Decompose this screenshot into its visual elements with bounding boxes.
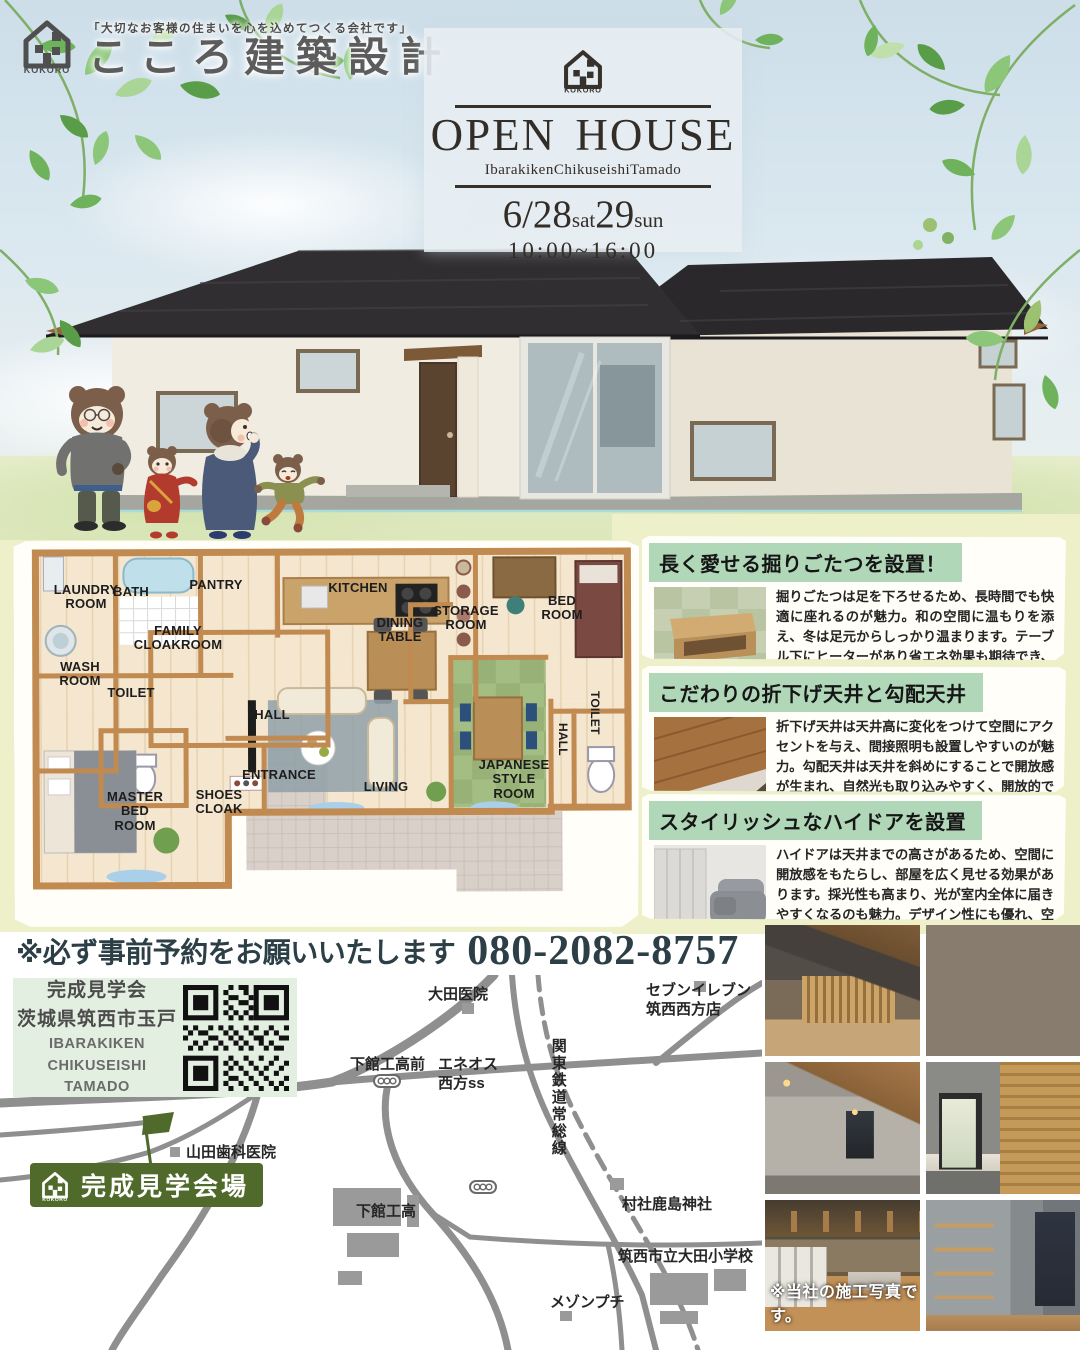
map-label-ota-clinic: 大田医院 <box>428 986 488 1005</box>
photo-living-blinds <box>765 925 920 1056</box>
feature-card-kotatsu: 長く愛せる掘りごたつを設置！ 掘りごたつは足を下ろせるため、長時間でも快適に座れ… <box>642 536 1066 660</box>
toddler-bear <box>254 454 325 533</box>
room-label-toilet-1: TOILET <box>96 686 166 700</box>
venue-badge-label: 完成見学会場 <box>81 1167 249 1203</box>
divider <box>455 105 711 108</box>
mother-bear <box>202 403 259 539</box>
map-label-shimodate-mae: 下館工高前 <box>350 1056 425 1075</box>
svg-text:KOKORO: KOKORO <box>564 86 601 94</box>
room-label-storage: STORAGE ROOM <box>428 604 504 633</box>
room-label-living: LIVING <box>344 780 428 794</box>
feature-card-hidoor: スタイリッシュなハイドアを設置 ハイドアは天井までの高さがあるため、空間に開放感… <box>642 794 1066 920</box>
company-name: こころ建築設計 <box>88 36 452 79</box>
room-label-dining: DINING TABLE <box>366 616 434 645</box>
open-house-time: 10:00~16:00 <box>424 238 742 264</box>
qr-code <box>183 985 289 1091</box>
room-label-toilet-2: TOILET <box>588 678 601 748</box>
map-label-ota-elementary: 筑西市立大田小学校 <box>618 1248 753 1267</box>
open-house-title: OPEN HOUSE <box>424 112 742 159</box>
kokoro-logo-icon: KOKORO <box>38 1169 72 1202</box>
venue-badge: KOKORO 完成見学会場 <box>30 1163 263 1207</box>
flyer-page: KOKORO 「大切なお客様の住まいを心を込めてつくる会社です」 こころ建築設計… <box>0 0 1080 1350</box>
venue-address-jp: 茨城県筑西市玉戸 <box>17 1006 177 1035</box>
room-label-pantry: PANTRY <box>176 578 256 592</box>
reservation-note: ※必ず事前予約をお願いいたします <box>16 931 455 971</box>
girl-bear <box>144 446 194 539</box>
date-day1-suffix: sat <box>572 208 595 232</box>
room-label-japanese-room: JAPANESE STYLE ROOM <box>462 758 566 801</box>
map-label-seven-eleven: セブンイレブン 筑西西方店 <box>646 982 751 1020</box>
room-label-master-bedroom: MASTER BED ROOM <box>80 790 190 833</box>
bear-family-illustration <box>30 385 370 540</box>
construction-photo-grid: ※当社の施工写真です。 <box>765 925 1080 1331</box>
company-brand: KOKORO 「大切なお客様の住まいを心を込めてつくる会社です」 こころ建築設計 <box>16 16 452 79</box>
room-label-bath: BATH <box>96 585 166 599</box>
photo-brick-wall-room <box>926 1062 1080 1193</box>
venue-address-en3: TAMADO <box>17 1077 177 1098</box>
venue-address-en2: CHIKUSEISHI <box>17 1056 177 1077</box>
open-house-date: 6/28sat29sun <box>424 192 742 237</box>
date-day2-suffix: sun <box>634 208 663 232</box>
phone-number: 080-2082-8757 <box>467 927 739 975</box>
map-label-maison-petit: メゾンプチ <box>550 1294 625 1313</box>
reservation-line: ※必ず事前予約をお願いいたします 080-2082-8757 <box>16 927 764 975</box>
feature-title: 長く愛せる掘りごたつを設置！ <box>649 543 962 582</box>
father-bear <box>61 386 126 531</box>
svg-text:KOKORO: KOKORO <box>24 65 71 74</box>
map-label-railway: 関東鉄道常総線 <box>548 1038 567 1157</box>
photo-washroom-vanity <box>926 925 1080 1056</box>
feature-title: スタイリッシュなハイドアを設置 <box>649 801 982 840</box>
date-day1: 6/28 <box>503 193 572 236</box>
map-label-yamada-dental: 山田歯科医院 <box>186 1144 276 1163</box>
room-label-hall-1: HALL <box>240 708 304 722</box>
venue-event-name: 完成見学会 <box>17 977 177 1006</box>
venue-address-en1: IBARAKIKEN <box>17 1034 177 1055</box>
photo-walkin-closet <box>926 1200 1080 1331</box>
kokoro-logo-icon: KOKORO <box>16 16 78 74</box>
open-house-location: IbarakikenChikuseishiTamado <box>424 162 742 179</box>
feature-card-ceiling: こだわりの折下げ天井と勾配天井 折下げ天井は天井高に変化をつけて空間にアクセント… <box>642 666 1066 792</box>
photo-caption: ※当社の施工写真です。 <box>770 1278 920 1326</box>
feature-title: こだわりの折下げ天井と勾配天井 <box>649 673 983 712</box>
map-label-shimodate-tech: 下館工高 <box>356 1203 416 1222</box>
photo-hallway-ceiling <box>765 1062 920 1193</box>
kokoro-logo-icon: KOKORO <box>558 46 608 94</box>
photo-living-beams: ※当社の施工写真です。 <box>765 1200 920 1331</box>
room-label-shoes-cloak: SHOES CLOAK <box>176 788 262 817</box>
room-label-bedroom: BED ROOM <box>524 594 600 623</box>
open-house-panel: KOKORO OPEN HOUSE IbarakikenChikuseishiT… <box>424 28 742 252</box>
room-label-entrance: ENTRANCE <box>234 768 324 782</box>
room-label-family-cloakroom: FAMILY CLOAKROOM <box>118 624 238 653</box>
map-label-kashima-shrine: 村社鹿島神社 <box>622 1196 712 1215</box>
room-label-kitchen: KITCHEN <box>316 581 400 595</box>
map-label-eneos: エネオス 西方ss <box>438 1056 498 1094</box>
divider <box>455 185 711 188</box>
venue-address-box: 完成見学会 茨城県筑西市玉戸 IBARAKIKEN CHIKUSEISHI TA… <box>13 978 297 1097</box>
date-day2: 29 <box>595 193 634 236</box>
svg-text:KOKORO: KOKORO <box>42 1196 67 1201</box>
